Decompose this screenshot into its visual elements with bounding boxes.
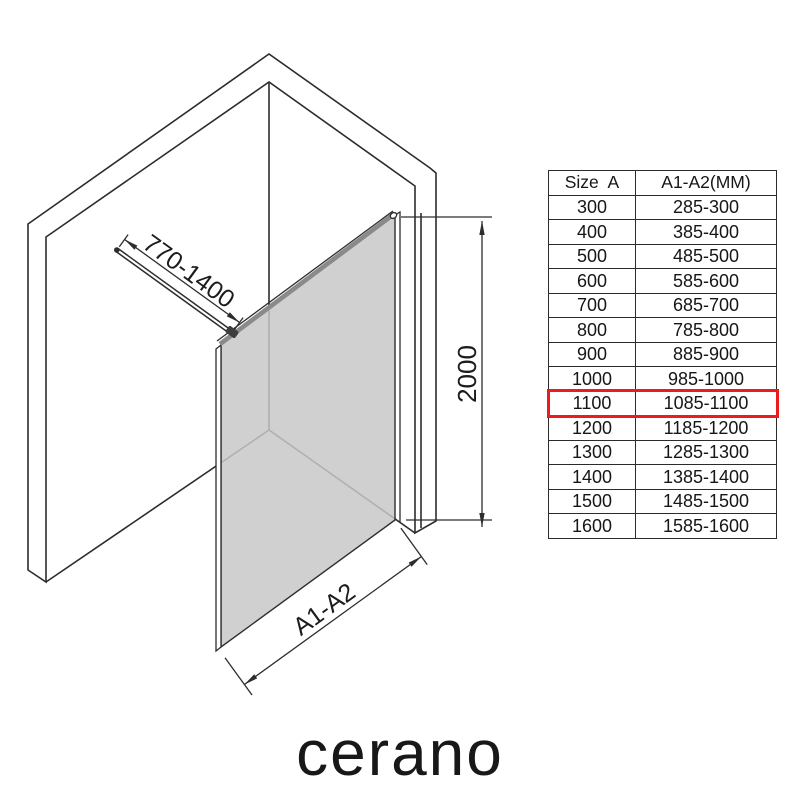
- table-row: 11001085-1100: [549, 391, 777, 416]
- col-header-size: Size A: [549, 171, 636, 196]
- glass-edge-right: [395, 212, 400, 522]
- table-cell: 1000: [549, 367, 636, 392]
- table-cell: 700: [549, 293, 636, 318]
- brand-logo: cerano: [0, 716, 800, 790]
- table-cell: 485-500: [636, 244, 777, 269]
- size-table-body: 300285-300400385-400500485-500600585-600…: [549, 195, 777, 538]
- table-row: 12001185-1200: [549, 416, 777, 441]
- table-cell: 1300: [549, 440, 636, 465]
- table-cell: 1485-1500: [636, 489, 777, 514]
- table-cell: 885-900: [636, 342, 777, 367]
- table-cell: 1185-1200: [636, 416, 777, 441]
- table-row: 1000985-1000: [549, 367, 777, 392]
- table-cell: 1385-1400: [636, 465, 777, 490]
- dim-height-label: 2000: [452, 345, 482, 403]
- table-cell: 1400: [549, 465, 636, 490]
- table-row: 15001485-1500: [549, 489, 777, 514]
- table-cell: 285-300: [636, 195, 777, 220]
- table-row: 300285-300: [549, 195, 777, 220]
- table-cell: 985-1000: [636, 367, 777, 392]
- table-cell: 1285-1300: [636, 440, 777, 465]
- table-cell: 1600: [549, 514, 636, 539]
- table-cell: 800: [549, 318, 636, 343]
- table-row: 13001285-1300: [549, 440, 777, 465]
- table-row: 900885-900: [549, 342, 777, 367]
- table-row: 14001385-1400: [549, 465, 777, 490]
- table-cell: 1200: [549, 416, 636, 441]
- table-cell: 1500: [549, 489, 636, 514]
- page: { "diagram": { "labels": { "bar_range": …: [0, 0, 800, 800]
- table-cell: 1585-1600: [636, 514, 777, 539]
- table-cell: 500: [549, 244, 636, 269]
- table-header-row: Size A A1-A2(MM): [549, 171, 777, 196]
- table-cell: 585-600: [636, 269, 777, 294]
- table-cell: 900: [549, 342, 636, 367]
- table-row: 800785-800: [549, 318, 777, 343]
- table-cell: 1100: [549, 391, 636, 416]
- dim-bar-label: 770-1400: [138, 229, 240, 314]
- table-cell: 600: [549, 269, 636, 294]
- table-row: 500485-500: [549, 244, 777, 269]
- table-row: 400385-400: [549, 220, 777, 245]
- bar-wall-anchor-icon: [114, 247, 120, 253]
- table-cell: 685-700: [636, 293, 777, 318]
- table-cell: 400: [549, 220, 636, 245]
- size-table: Size A A1-A2(MM) 300285-300400385-400500…: [548, 170, 777, 539]
- table-row: 600585-600: [549, 269, 777, 294]
- table-cell: 385-400: [636, 220, 777, 245]
- glass-edge-left: [216, 345, 221, 651]
- table-cell: 1085-1100: [636, 391, 777, 416]
- table-row: 700685-700: [549, 293, 777, 318]
- table-cell: 300: [549, 195, 636, 220]
- col-header-range: A1-A2(MM): [636, 171, 777, 196]
- table-cell: 785-800: [636, 318, 777, 343]
- table-row: 16001585-1600: [549, 514, 777, 539]
- shower-screen-diagram: 770-1400 2000 A1-A2: [0, 0, 540, 720]
